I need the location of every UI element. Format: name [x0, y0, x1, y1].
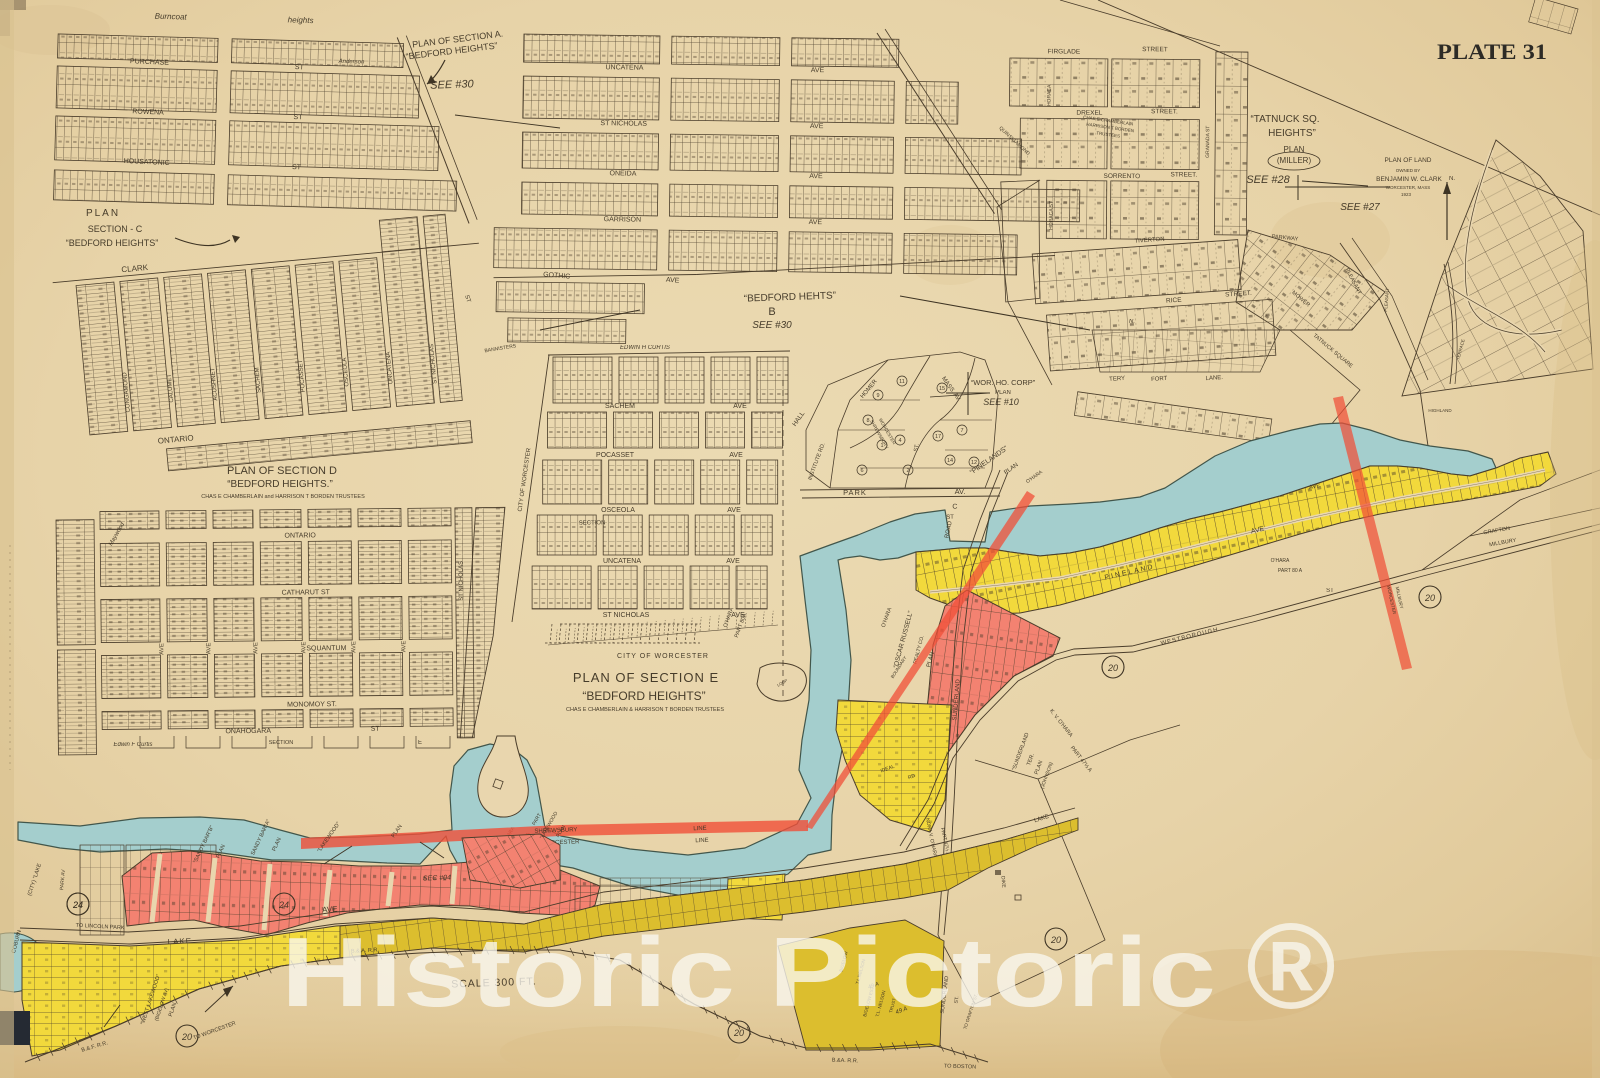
svg-text:ROWENA: ROWENA [132, 108, 164, 116]
svg-text:SORRENTO: SORRENTO [1103, 173, 1140, 180]
svg-text:DREXEL: DREXEL [1076, 110, 1102, 117]
svg-text:AVE: AVE [206, 643, 212, 655]
svg-text:15: 15 [939, 386, 945, 392]
svg-text:STREET.: STREET. [1170, 171, 1197, 178]
svg-text:FORT: FORT [1151, 376, 1168, 383]
svg-text:SEE #27: SEE #27 [1340, 202, 1380, 213]
svg-text:AVE: AVE [726, 558, 740, 565]
svg-text:PLAN OF SECTION D: PLAN OF SECTION D [227, 465, 337, 477]
svg-text:HIGHLAND: HIGHLAND [1428, 408, 1452, 413]
svg-text:OWNED BY: OWNED BY [1396, 168, 1421, 173]
svg-text:20: 20 [733, 1028, 744, 1038]
svg-text:AVE: AVE [809, 173, 823, 180]
svg-text:SACHEM: SACHEM [605, 403, 635, 410]
svg-text:TO BOSTON: TO BOSTON [944, 1063, 976, 1070]
svg-text:“BEDFORD HEIGHTS.”: “BEDFORD HEIGHTS.” [227, 479, 333, 490]
svg-text:BENJAMIN W. CLARK: BENJAMIN W. CLARK [1376, 176, 1442, 183]
svg-text:“WOR. HO. CORP”: “WOR. HO. CORP” [971, 378, 1036, 387]
svg-text:20: 20 [1107, 663, 1118, 673]
svg-text:SEE #30: SEE #30 [430, 78, 475, 92]
svg-text:4: 4 [898, 438, 901, 444]
svg-text:LINE: LINE [693, 826, 707, 832]
svg-text:SECTION: SECTION [269, 740, 293, 746]
svg-text:CATHARUT ST: CATHARUT ST [282, 589, 331, 597]
svg-text:ST: ST [371, 726, 381, 733]
svg-text:LANE.: LANE. [1205, 375, 1223, 382]
svg-text:AVE: AVE [810, 123, 824, 130]
svg-text:20: 20 [181, 1032, 192, 1042]
svg-text:20: 20 [1424, 593, 1435, 603]
svg-text:OSCEOLA: OSCEOLA [601, 507, 635, 514]
svg-text:ST: ST [292, 164, 302, 171]
svg-text:“BEDFORD HEIGHTS”: “BEDFORD HEIGHTS” [582, 689, 705, 703]
svg-text:HORACA ST: HORACA ST [1048, 201, 1054, 230]
svg-text:TERY: TERY [1109, 376, 1125, 383]
svg-text:“TATNUCK SQ.: “TATNUCK SQ. [1250, 114, 1319, 125]
svg-text:PART 80 A: PART 80 A [1278, 568, 1303, 574]
svg-text:DIKE: DIKE [999, 876, 1006, 889]
svg-text:ONAHOGARA: ONAHOGARA [225, 728, 271, 735]
svg-text:ST: ST [293, 114, 303, 121]
svg-text:RICE: RICE [1166, 297, 1183, 305]
svg-text:N.: N. [1449, 176, 1455, 182]
svg-text:AVE: AVE [322, 904, 338, 914]
svg-text:ST: ST [946, 515, 954, 521]
svg-text:Burncoat: Burncoat [155, 12, 188, 22]
svg-text:Anderson: Anderson [338, 59, 366, 66]
svg-text:SEE #28: SEE #28 [1246, 174, 1290, 186]
svg-text:9: 9 [876, 393, 879, 399]
svg-text:SQUANTUM: SQUANTUM [306, 645, 346, 652]
svg-text:24: 24 [72, 900, 83, 910]
svg-text:ST NICHOLAS: ST NICHOLAS [603, 612, 650, 619]
svg-text:ST: ST [1326, 588, 1334, 594]
svg-text:6: 6 [860, 468, 863, 474]
svg-text:PARK: PARK [843, 488, 867, 497]
svg-text:CITY OF WORCESTER: CITY OF WORCESTER [617, 653, 709, 660]
svg-text:AVE: AVE [159, 643, 165, 655]
svg-text:E: E [418, 740, 422, 746]
svg-text:17: 17 [935, 434, 941, 440]
svg-text:SEC #04: SEC #04 [423, 875, 451, 883]
svg-text:“BEDFORD HEIGHTS”: “BEDFORD HEIGHTS” [66, 238, 159, 248]
svg-text:AVE: AVE [301, 642, 307, 654]
svg-text:SECTION - C: SECTION - C [88, 224, 143, 234]
svg-text:FIRGLADE: FIRGLADE [1048, 48, 1081, 55]
svg-text:CHAS E CHAMBERLAIN and HARRISO: CHAS E CHAMBERLAIN and HARRISON T BORDEN… [201, 494, 365, 500]
svg-text:SEE #30: SEE #30 [752, 320, 792, 331]
svg-text:GRANADA ST: GRANADA ST [1205, 126, 1211, 158]
svg-text:ST NICHOLAS: ST NICHOLAS [458, 561, 464, 601]
svg-text:HORACA: HORACA [1046, 84, 1052, 106]
svg-text:AVE: AVE [733, 403, 747, 410]
svg-text:POCASSET: POCASSET [596, 452, 635, 459]
svg-text:PLAN OF SECTION E: PLAN OF SECTION E [573, 670, 719, 685]
svg-text:PLAN: PLAN [995, 390, 1011, 396]
svg-text:LINE: LINE [695, 838, 709, 844]
svg-text:GARRISON: GARRISON [604, 216, 641, 224]
svg-text:PLATE 31: PLATE 31 [1437, 39, 1547, 64]
svg-text:heights: heights [288, 15, 314, 25]
svg-text:WORCESTER, MASS: WORCESTER, MASS [1386, 185, 1431, 190]
svg-text:PLAN OF LAND: PLAN OF LAND [1385, 157, 1432, 164]
svg-text:ST: ST [295, 64, 305, 71]
svg-text:24: 24 [278, 900, 289, 910]
svg-text:ST NICHOLAS: ST NICHOLAS [600, 120, 647, 128]
svg-text:UNCATENA: UNCATENA [605, 64, 643, 72]
svg-text:AVE: AVE [253, 642, 259, 654]
svg-text:C: C [952, 504, 957, 511]
svg-text:11: 11 [899, 379, 905, 385]
svg-text:®: ® [1246, 898, 1336, 1034]
svg-text:CHAS E CHAMBERLAIN & HARRISON: CHAS E CHAMBERLAIN & HARRISON T BORDEN T… [566, 707, 724, 713]
svg-text:7: 7 [960, 428, 963, 434]
svg-text:(MILLER): (MILLER) [1277, 156, 1312, 165]
svg-text:Edwin F Curtis: Edwin F Curtis [114, 742, 153, 748]
svg-text:EDWIN H CURTIS: EDWIN H CURTIS [620, 345, 670, 351]
svg-text:Historic Pictoric: Historic Pictoric [281, 917, 1216, 1027]
svg-text:AVE: AVE [666, 277, 680, 285]
svg-text:ONEIDA: ONEIDA [610, 170, 637, 177]
svg-text:ONTARIO: ONTARIO [284, 532, 316, 539]
svg-text:HEIGHTS”: HEIGHTS” [1268, 128, 1316, 139]
svg-text:AV.: AV. [955, 487, 966, 496]
svg-text:B.&A. R.R.: B.&A. R.R. [832, 1058, 859, 1065]
svg-text:MONOMOY ST.: MONOMOY ST. [287, 701, 337, 709]
svg-text:STREET: STREET [1142, 46, 1168, 53]
svg-text:AVE: AVE [351, 641, 357, 653]
svg-text:AVE: AVE [401, 641, 407, 653]
svg-text:2: 2 [906, 468, 909, 474]
svg-text:1923: 1923 [1401, 192, 1412, 197]
svg-text:AVE: AVE [729, 452, 743, 459]
svg-text:AVE: AVE [727, 507, 741, 514]
svg-text:B: B [768, 306, 775, 318]
svg-text:PLAN: PLAN [86, 208, 120, 219]
svg-text:AVE: AVE [811, 67, 825, 74]
svg-text:UNCATENA: UNCATENA [603, 558, 641, 565]
svg-text:STREET.: STREET. [1151, 108, 1178, 115]
svg-text:O'HARA: O'HARA [1271, 558, 1290, 564]
svg-text:SEE #10: SEE #10 [983, 397, 1019, 407]
svg-text:AVE: AVE [809, 219, 823, 226]
svg-text:14: 14 [947, 458, 953, 464]
